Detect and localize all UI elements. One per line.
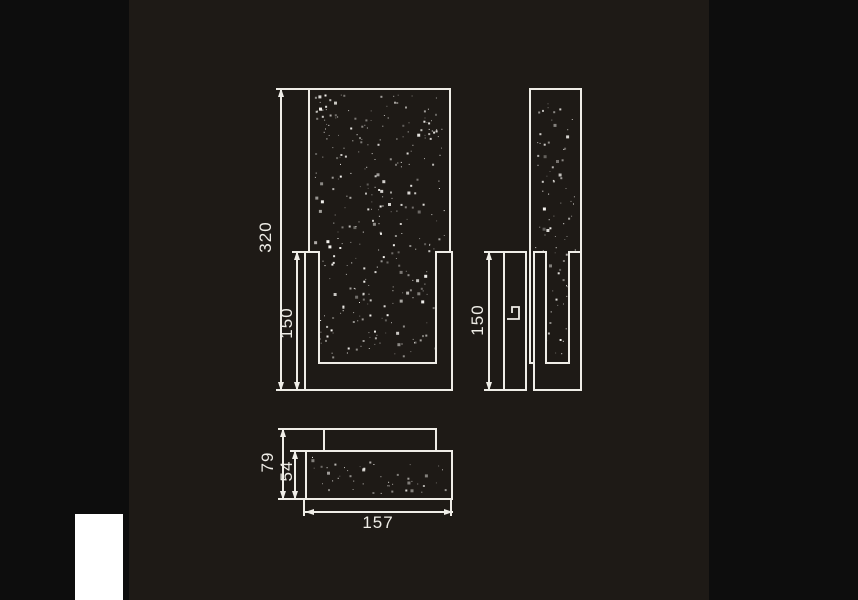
drawing-canvas: 320 150 150 79 54: [0, 0, 858, 600]
dim-157-group: 157: [0, 0, 858, 600]
arrowhead-right-icon: [444, 509, 453, 515]
dim-label-157: 157: [362, 513, 393, 533]
white-corner-patch: [75, 514, 123, 600]
arrowhead-left-icon: [305, 509, 314, 515]
